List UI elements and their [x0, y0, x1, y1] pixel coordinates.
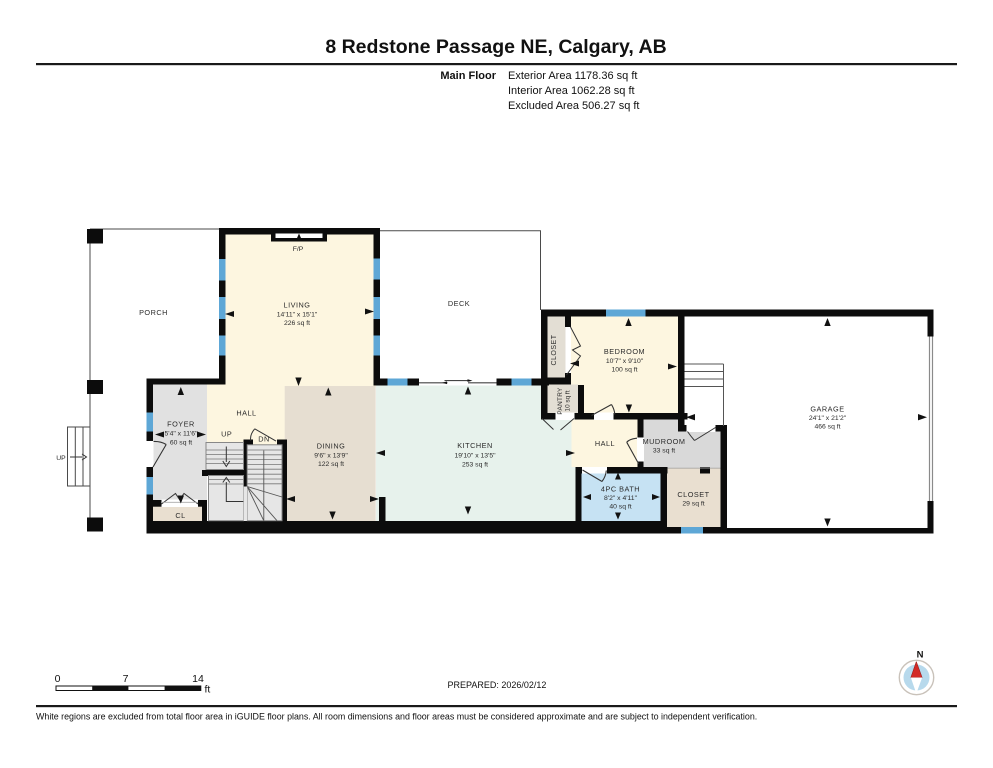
svg-text:Exterior Area 1178.36 sq ft: Exterior Area 1178.36 sq ft: [508, 70, 637, 82]
svg-text:122 sq ft: 122 sq ft: [318, 461, 344, 468]
svg-text:Main Floor: Main Floor: [440, 70, 496, 82]
svg-text:226 sq ft: 226 sq ft: [284, 320, 310, 327]
svg-text:10 sq ft: 10 sq ft: [565, 390, 572, 411]
svg-text:HALL: HALL: [595, 439, 615, 448]
svg-text:40 sq ft: 40 sq ft: [609, 504, 631, 511]
svg-text:CLOSET: CLOSET: [677, 490, 709, 499]
svg-text:100 sq ft: 100 sq ft: [611, 367, 637, 374]
svg-text:PORCH: PORCH: [139, 308, 168, 317]
svg-text:29 sq ft: 29 sq ft: [682, 501, 704, 508]
svg-text:DN: DN: [258, 434, 270, 443]
svg-text:33 sq ft: 33 sq ft: [653, 448, 675, 455]
svg-text:BEDROOM: BEDROOM: [604, 347, 645, 356]
svg-text:14'11" x 15'1": 14'11" x 15'1": [277, 312, 318, 319]
svg-text:HALL: HALL: [236, 409, 256, 418]
svg-text:UP: UP: [56, 455, 66, 462]
svg-text:KITCHEN: KITCHEN: [457, 441, 493, 450]
svg-text:8'2" x 4'11": 8'2" x 4'11": [604, 495, 638, 502]
svg-text:LIVING: LIVING: [284, 301, 311, 310]
svg-text:DINING: DINING: [317, 442, 346, 451]
svg-text:4PC BATH: 4PC BATH: [601, 485, 640, 494]
svg-text:0: 0: [55, 673, 61, 685]
svg-text:UP: UP: [221, 429, 232, 438]
svg-text:Interior Area 1062.28 sq ft: Interior Area 1062.28 sq ft: [508, 85, 635, 97]
svg-text:19'10" x 13'5": 19'10" x 13'5": [454, 453, 496, 460]
svg-text:GARAGE: GARAGE: [810, 405, 844, 414]
svg-text:CLOSET: CLOSET: [551, 334, 558, 365]
svg-text:5'4" x 11'6": 5'4" x 11'6": [165, 431, 199, 438]
svg-text:Excluded Area 506.27 sq ft: Excluded Area 506.27 sq ft: [508, 100, 639, 112]
svg-text:7: 7: [123, 673, 129, 685]
svg-text:PREPARED: 2026/02/12: PREPARED: 2026/02/12: [448, 680, 547, 690]
svg-text:466 sq ft: 466 sq ft: [814, 424, 840, 431]
svg-text:14: 14: [192, 673, 204, 685]
svg-text:White regions are excluded fro: White regions are excluded from total fl…: [36, 712, 757, 722]
svg-text:N: N: [917, 650, 924, 661]
svg-text:24'1" x 21'2": 24'1" x 21'2": [809, 415, 847, 422]
svg-text:F/P: F/P: [293, 246, 304, 253]
svg-text:ft: ft: [205, 684, 211, 696]
svg-text:60 sq ft: 60 sq ft: [170, 440, 192, 447]
svg-text:PANTRY: PANTRY: [557, 387, 564, 415]
svg-text:FOYER: FOYER: [167, 420, 195, 429]
svg-text:CL: CL: [175, 511, 185, 520]
svg-text:8 Redstone Passage NE, Calgary: 8 Redstone Passage NE, Calgary, AB: [325, 36, 666, 58]
svg-text:10'7" x 9'10": 10'7" x 9'10": [606, 358, 644, 365]
svg-text:MUDROOM: MUDROOM: [643, 437, 686, 446]
svg-text:9'6" x 13'9": 9'6" x 13'9": [314, 453, 348, 460]
svg-text:DECK: DECK: [448, 299, 470, 308]
svg-text:253 sq ft: 253 sq ft: [462, 462, 488, 469]
